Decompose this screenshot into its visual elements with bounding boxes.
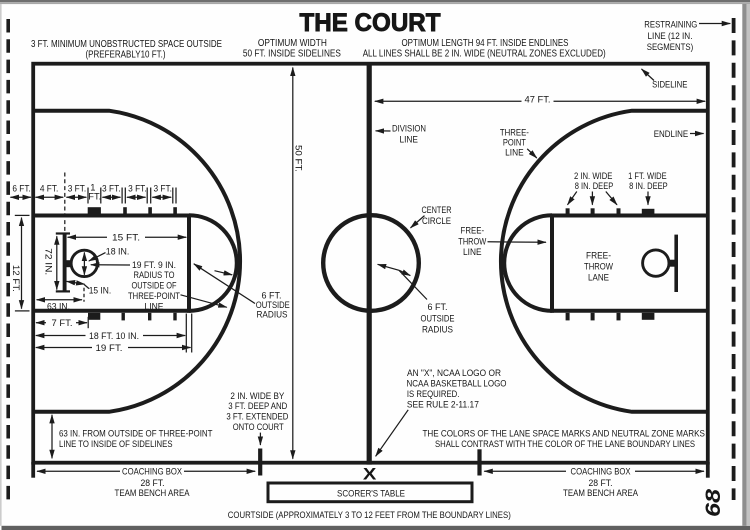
svg-text:3 FT.: 3 FT. [128, 183, 147, 193]
svg-text:THE COLORS OF THE LANE SPACE M: THE COLORS OF THE LANE SPACE MARKS AND N… [422, 429, 705, 439]
svg-text:3 FT.: 3 FT. [68, 183, 87, 193]
svg-text:RADIUS: RADIUS [422, 324, 453, 334]
svg-text:3 FT. MINIMUM UNOBSTRUCTED SPA: 3 FT. MINIMUM UNOBSTRUCTED SPACE OUTSIDE [31, 39, 222, 50]
svg-text:THREE-POINT: THREE-POINT [128, 291, 180, 301]
svg-text:18 IN.: 18 IN. [106, 246, 130, 256]
svg-text:3 FT. DEEP AND: 3 FT. DEEP AND [228, 401, 287, 411]
svg-text:63 IN.: 63 IN. [47, 301, 70, 311]
svg-text:28 FT.: 28 FT. [141, 478, 165, 488]
svg-text:SEE RULE 2-11.17: SEE RULE 2-11.17 [407, 399, 479, 409]
svg-text:50 FT. INSIDE SIDELINES: 50 FT. INSIDE SIDELINES [243, 49, 341, 60]
svg-text:19 FT.: 19 FT. [96, 343, 123, 353]
svg-text:DIVISION: DIVISION [392, 123, 426, 133]
svg-text:NCAA BASKETBALL LOGO: NCAA BASKETBALL LOGO [407, 378, 507, 388]
svg-text:19 FT. 9 IN.: 19 FT. 9 IN. [132, 260, 176, 270]
svg-text:6 FT.: 6 FT. [12, 183, 31, 193]
svg-text:TEAM BENCH AREA: TEAM BENCH AREA [115, 488, 191, 498]
svg-text:THROW: THROW [458, 236, 486, 246]
svg-text:COURTSIDE (APPROXIMATELY 3 TO: COURTSIDE (APPROXIMATELY 3 TO 12 FEET FR… [228, 510, 511, 520]
svg-text:50 FT.: 50 FT. [293, 145, 303, 172]
svg-text:FT.: FT. [88, 192, 101, 202]
svg-text:LINE: LINE [145, 301, 164, 311]
svg-text:18 FT. 10 IN.: 18 FT. 10 IN. [89, 331, 139, 341]
svg-text:8 IN. DEEP: 8 IN. DEEP [629, 181, 668, 191]
svg-text:8 IN. DEEP: 8 IN. DEEP [575, 181, 614, 191]
svg-text:COACHING BOX: COACHING BOX [571, 467, 632, 477]
svg-text:SIDELINE: SIDELINE [652, 80, 687, 90]
svg-text:ENDLINE: ENDLINE [654, 129, 689, 139]
svg-text:63 IN. FROM OUTSIDE OF THREE-P: 63 IN. FROM OUTSIDE OF THREE-POINT [59, 428, 213, 438]
svg-text:ONTO COURT: ONTO COURT [233, 422, 284, 432]
svg-text:ALL LINES SHALL BE 2 IN. WIDE: ALL LINES SHALL BE 2 IN. WIDE (NEUTRAL Z… [363, 49, 606, 60]
svg-text:3 FT.: 3 FT. [102, 183, 121, 193]
svg-text:LINE TO INSIDE OF SIDELINES: LINE TO INSIDE OF SIDELINES [59, 439, 173, 449]
svg-text:(PREFERABLY10 FT.): (PREFERABLY10 FT.) [86, 50, 166, 61]
svg-text:OPTIMUM LENGTH 94 FT. INSIDE E: OPTIMUM LENGTH 94 FT. INSIDE ENDLINES [402, 38, 569, 49]
svg-text:6 FT.: 6 FT. [428, 302, 448, 312]
svg-text:THREE-: THREE- [500, 128, 529, 138]
svg-text:47 FT.: 47 FT. [525, 94, 551, 104]
svg-text:FREE-: FREE- [461, 225, 485, 235]
svg-text:LINE: LINE [463, 247, 482, 257]
svg-text:IS REQUIRED.: IS REQUIRED. [407, 389, 460, 399]
svg-text:4 FT.: 4 FT. [40, 183, 59, 193]
svg-text:RADIUS TO: RADIUS TO [134, 270, 175, 280]
svg-text:15 IN.: 15 IN. [89, 286, 112, 296]
svg-text:OUTSIDE: OUTSIDE [421, 313, 455, 323]
svg-text:28 FT.: 28 FT. [589, 478, 613, 488]
svg-text:7 FT.: 7 FT. [52, 318, 73, 328]
svg-text:1 FT. WIDE: 1 FT. WIDE [628, 171, 667, 181]
svg-text:12 FT.: 12 FT. [11, 265, 21, 292]
svg-text:2 IN. WIDE BY: 2 IN. WIDE BY [230, 391, 285, 401]
svg-text:COACHING BOX: COACHING BOX [122, 467, 183, 477]
svg-text:OPTIMUM WIDTH: OPTIMUM WIDTH [258, 38, 327, 49]
svg-text:SHALL CONTRAST WITH THE COLOR: SHALL CONTRAST WITH THE COLOR OF THE LAN… [435, 439, 695, 449]
svg-text:RESTRAINING: RESTRAINING [644, 20, 697, 30]
svg-text:AN "X", NCAA LOGO OR: AN "X", NCAA LOGO OR [407, 368, 501, 378]
svg-text:72 IN.: 72 IN. [44, 248, 54, 275]
svg-text:CENTER: CENTER [422, 205, 452, 215]
svg-text:OUTSIDE OF: OUTSIDE OF [132, 281, 177, 291]
svg-text:LINE: LINE [399, 134, 418, 144]
svg-text:3 FT.: 3 FT. [153, 183, 172, 193]
svg-text:FREE-: FREE- [586, 250, 611, 260]
svg-text:LINE: LINE [505, 148, 524, 158]
svg-text:2 IN. WIDE: 2 IN. WIDE [574, 171, 613, 181]
svg-text:SEGMENTS): SEGMENTS) [647, 42, 694, 52]
svg-text:THE COURT: THE COURT [300, 9, 441, 37]
svg-text:TEAM BENCH AREA: TEAM BENCH AREA [563, 488, 639, 498]
svg-text:68: 68 [701, 489, 725, 517]
svg-text:POINT: POINT [503, 138, 526, 148]
svg-text:LINE (12 IN.: LINE (12 IN. [648, 31, 693, 41]
svg-text:CIRCLE: CIRCLE [422, 216, 451, 226]
svg-text:RADIUS: RADIUS [257, 310, 288, 320]
svg-text:LANE: LANE [588, 273, 609, 283]
svg-text:SCORER'S TABLE: SCORER'S TABLE [337, 489, 405, 499]
svg-text:X: X [363, 465, 377, 483]
svg-text:THROW: THROW [584, 262, 613, 272]
svg-text:15 FT.: 15 FT. [112, 233, 140, 243]
svg-text:3 FT. EXTENDED: 3 FT. EXTENDED [226, 412, 288, 422]
